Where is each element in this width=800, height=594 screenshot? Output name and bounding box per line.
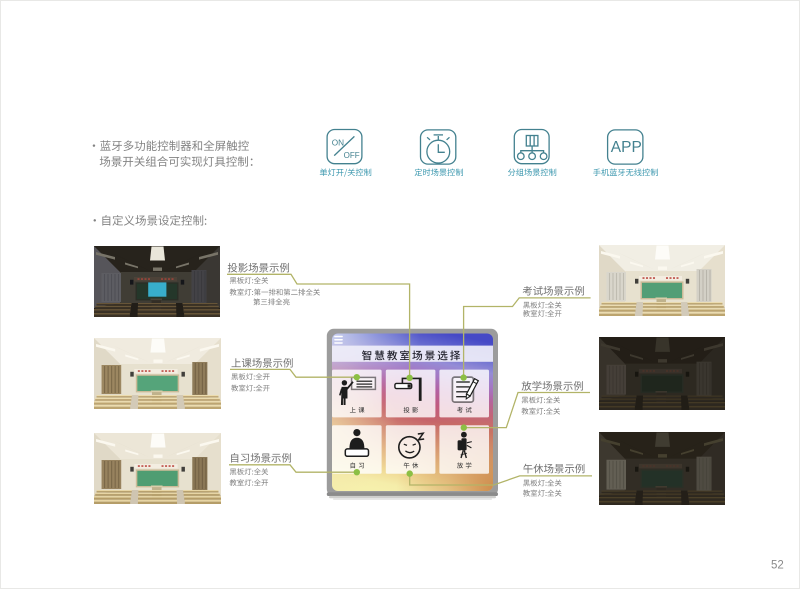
svg-text:APP: APP: [611, 139, 642, 156]
svg-text:52: 52: [771, 560, 784, 572]
svg-text:OFF: OFF: [344, 151, 360, 160]
svg-text:ON: ON: [332, 138, 344, 147]
